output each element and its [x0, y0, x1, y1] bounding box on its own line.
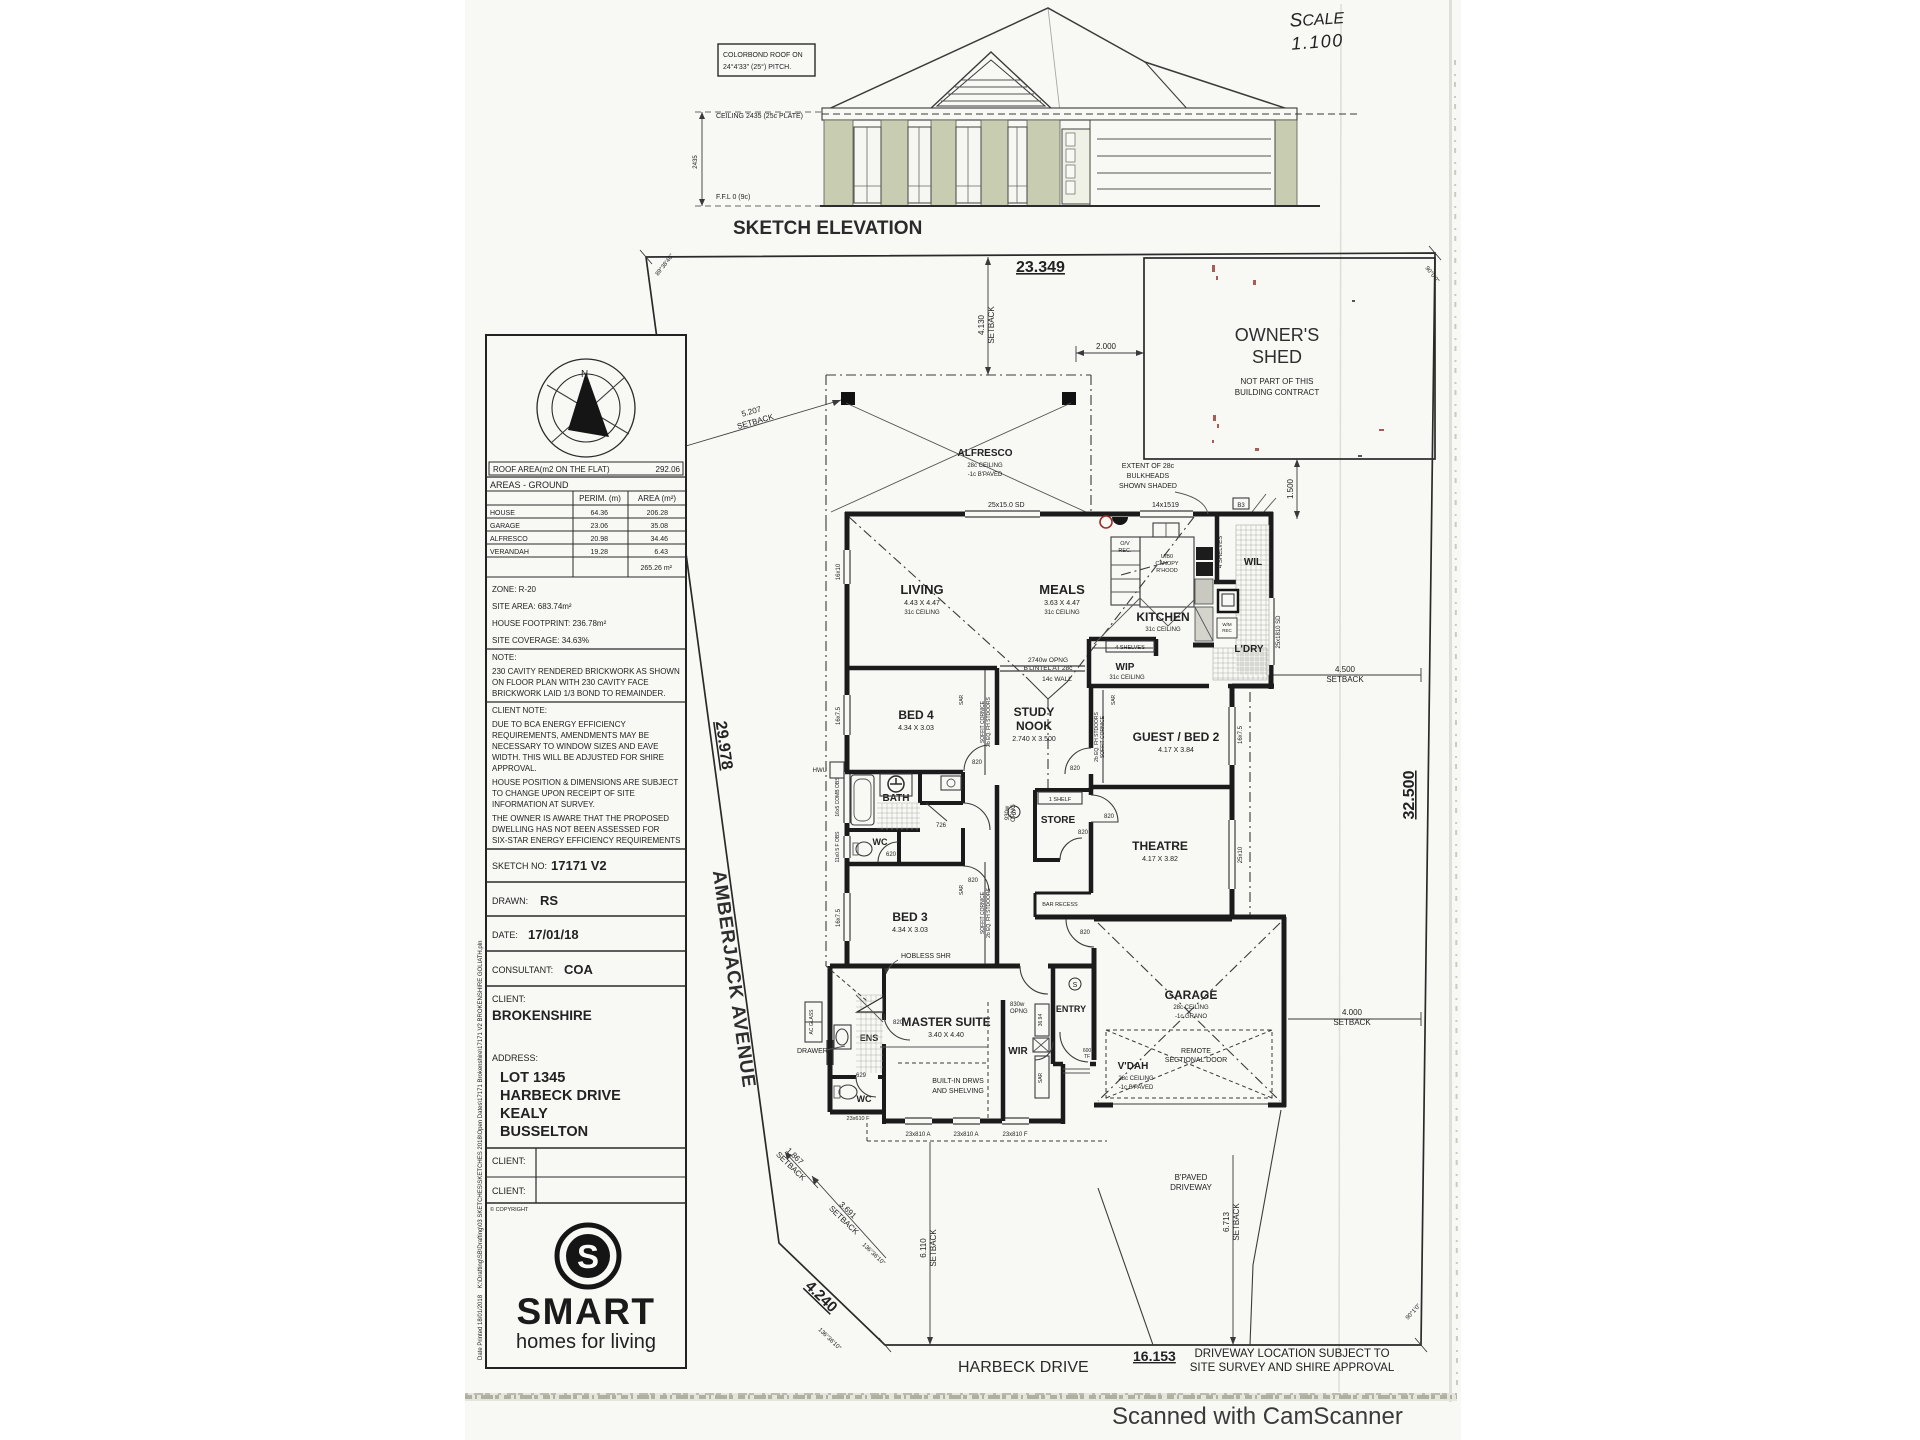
svg-text:2.740 X 3.500: 2.740 X 3.500: [1012, 736, 1056, 743]
svg-text:APPROVAL.: APPROVAL.: [492, 764, 537, 773]
svg-text:GUEST / BED 2: GUEST / BED 2: [1133, 730, 1220, 744]
svg-text:ADDRESS:: ADDRESS:: [492, 1053, 538, 1063]
svg-text:SITE COVERAGE: 34.63%: SITE COVERAGE: 34.63%: [492, 636, 589, 645]
svg-text:STUDY: STUDY: [1014, 705, 1055, 719]
svg-text:COLORBOND ROOF ON: COLORBOND ROOF ON: [723, 52, 803, 59]
svg-text:11x0.5 F OBS: 11x0.5 F OBS: [835, 831, 841, 863]
svg-text:-1c GRANO: -1c GRANO: [1175, 1014, 1207, 1020]
svg-text:OPNG: OPNG: [1010, 1009, 1028, 1015]
svg-text:NOOK: NOOK: [1016, 719, 1052, 733]
svg-text:20.98: 20.98: [590, 536, 608, 543]
svg-text:17/01/18: 17/01/18: [528, 927, 579, 942]
svg-text:23x610 F: 23x610 F: [847, 1116, 871, 1122]
svg-text:BUILDING CONTRACT: BUILDING CONTRACT: [1235, 388, 1320, 397]
svg-text:HOUSE FOOTPRINT: 236.78m²: HOUSE FOOTPRINT: 236.78m²: [492, 619, 607, 628]
svg-text:ENTRY: ENTRY: [1056, 1004, 1086, 1014]
svg-text:820: 820: [1080, 930, 1091, 936]
svg-text:SKETCH NO:: SKETCH NO:: [492, 861, 547, 871]
svg-text:35.08: 35.08: [650, 523, 668, 530]
svg-text:265.26 m²: 265.26 m²: [640, 565, 672, 572]
svg-text:16.153: 16.153: [1133, 1348, 1176, 1364]
svg-text:BULKHEADS: BULKHEADS: [1127, 473, 1170, 480]
svg-text:820: 820: [972, 760, 983, 766]
svg-text:4.34 X 3.03: 4.34 X 3.03: [892, 927, 928, 934]
svg-text:B'PAVED: B'PAVED: [1175, 1173, 1208, 1182]
svg-text:ALFRESCO: ALFRESCO: [958, 448, 1013, 459]
svg-text:NOTE:: NOTE:: [492, 653, 516, 662]
svg-text:4.17 X 3.82: 4.17 X 3.82: [1142, 856, 1178, 863]
svg-text:LIVING: LIVING: [900, 582, 943, 597]
svg-text:INFORMATION AT SURVEY.: INFORMATION AT SURVEY.: [492, 800, 595, 809]
svg-text:VERANDAH: VERANDAH: [490, 549, 529, 556]
svg-text:DRIVEWAY LOCATION SUBJECT TO: DRIVEWAY LOCATION SUBJECT TO: [1194, 1348, 1389, 1360]
svg-text:SETBACK: SETBACK: [1326, 675, 1364, 684]
svg-text:SETBACK: SETBACK: [1232, 1203, 1241, 1241]
svg-text:28c CEILING: 28c CEILING: [1173, 1005, 1209, 1011]
svg-text:SOFFIT CORNICE: SOFFIT CORNICE: [980, 891, 986, 934]
svg-text:17171 V2: 17171 V2: [551, 858, 607, 873]
svg-text:OWNER'S: OWNER'S: [1235, 325, 1319, 345]
svg-text:BAR RECESS: BAR RECESS: [1042, 902, 1078, 908]
svg-text:RS: RS: [540, 893, 558, 908]
svg-text:34.46: 34.46: [650, 536, 668, 543]
svg-text:R'HOOD: R'HOOD: [1156, 568, 1178, 574]
svg-text:4.000: 4.000: [1342, 1008, 1363, 1017]
svg-text:2b EQ. FH STDOORS: 2b EQ. FH STDOORS: [986, 887, 992, 937]
svg-text:16x7.5: 16x7.5: [836, 908, 842, 927]
svg-text:SETBACK: SETBACK: [1333, 1018, 1371, 1027]
svg-text:SAR: SAR: [1111, 694, 1117, 705]
svg-text:HARBECK DRIVE: HARBECK DRIVE: [958, 1359, 1089, 1376]
svg-text:Date Printed 18/01/2018 K:\: Date Printed 18/01/2018 K:\Drafting\SB\D…: [478, 941, 484, 1360]
svg-text:L'DRY: L'DRY: [1234, 644, 1264, 655]
svg-text:SMART: SMART: [516, 1291, 655, 1332]
svg-text:28c CEILING: 28c CEILING: [967, 463, 1003, 469]
svg-text:23.06: 23.06: [590, 523, 608, 530]
svg-text:16x10: 16x10: [836, 563, 842, 580]
svg-text:23.349: 23.349: [1016, 259, 1065, 276]
svg-text:DRAWERS: DRAWERS: [797, 1048, 833, 1055]
svg-text:820: 820: [1070, 766, 1081, 772]
svg-text:6.43: 6.43: [654, 549, 668, 556]
svg-text:16x7.5: 16x7.5: [836, 706, 842, 725]
svg-text:THEATRE: THEATRE: [1132, 839, 1188, 853]
svg-text:ON FLOOR PLAN WITH 230 CAVITY: ON FLOOR PLAN WITH 230 CAVITY FACE: [492, 678, 649, 687]
svg-text:CLIENT NOTE:: CLIENT NOTE:: [492, 706, 547, 715]
svg-text:V'DAH: V'DAH: [1118, 1061, 1149, 1072]
svg-text:25x15.0 SD: 25x15.0 SD: [988, 502, 1025, 509]
svg-text:U/B0: U/B0: [1161, 554, 1173, 560]
svg-text:16x5 COMB OBS: 16x5 COMB OBS: [835, 777, 841, 817]
svg-text:25x1810 SD: 25x1810 SD: [1276, 615, 1282, 649]
svg-text:14x1519: 14x1519: [1152, 502, 1179, 509]
svg-text:SITE SURVEY AND SHIRE APPROVAL: SITE SURVEY AND SHIRE APPROVAL: [1190, 1362, 1395, 1374]
svg-text:19.28: 19.28: [590, 549, 608, 556]
svg-text:EXTENT OF 28c: EXTENT OF 28c: [1122, 463, 1175, 470]
svg-text:CLIENT:: CLIENT:: [492, 1156, 526, 1166]
svg-text:O/V: O/V: [1120, 541, 1130, 547]
svg-text:NECESSARY TO WINDOW SIZES AND: NECESSARY TO WINDOW SIZES AND EAVE: [492, 742, 658, 751]
svg-text:726: 726: [936, 823, 947, 829]
svg-text:292.06: 292.06: [656, 465, 681, 474]
svg-text:ROOF AREA(m2 ON THE FLAT): ROOF AREA(m2 ON THE FLAT): [493, 465, 610, 474]
svg-text:820: 820: [893, 1020, 904, 1026]
svg-text:WIL: WIL: [1244, 557, 1262, 568]
svg-text:ZONE: R-20: ZONE: R-20: [492, 585, 537, 594]
svg-text:25x10: 25x10: [1238, 846, 1244, 863]
svg-text:1 SHELF: 1 SHELF: [1049, 797, 1072, 803]
svg-text:SITE AREA: 683.74m²: SITE AREA: 683.74m²: [492, 602, 572, 611]
svg-text:TO CHANGE UPON RECEIPT OF SITE: TO CHANGE UPON RECEIPT OF SITE: [492, 789, 635, 798]
svg-text:2b EQ. FH STDOORS: 2b EQ. FH STDOORS: [986, 696, 992, 746]
svg-text:© COPYRIGHT: © COPYRIGHT: [490, 1206, 529, 1213]
svg-text:6.713: 6.713: [1222, 1211, 1231, 1232]
svg-text:206.28: 206.28: [647, 510, 669, 517]
svg-text:SETBACK: SETBACK: [929, 1229, 938, 1267]
svg-text:820: 820: [968, 878, 979, 884]
svg-text:GARAGE: GARAGE: [490, 523, 520, 530]
svg-text:-1c B'PAVED: -1c B'PAVED: [1119, 1085, 1154, 1091]
svg-text:REC.: REC.: [1118, 548, 1132, 554]
svg-text:3.40 X 4.40: 3.40 X 4.40: [928, 1032, 964, 1039]
svg-text:23x810 A: 23x810 A: [953, 1132, 978, 1138]
svg-text:820: 820: [1104, 814, 1115, 820]
svg-text:16x7.5: 16x7.5: [1238, 725, 1244, 744]
svg-text:ENS: ENS: [860, 1033, 879, 1043]
svg-text:NOT PART OF THIS: NOT PART OF THIS: [1240, 377, 1313, 386]
svg-text:Scanned with CamScanner: Scanned with CamScanner: [1112, 1403, 1403, 1430]
svg-text:SOFFIT CORNICE: SOFFIT CORNICE: [980, 700, 986, 743]
svg-text:23x810 A: 23x810 A: [905, 1132, 930, 1138]
svg-text:24°4'33" (25°) PITCH.: 24°4'33" (25°) PITCH.: [723, 63, 791, 71]
svg-text:BATH: BATH: [882, 793, 909, 804]
svg-text:DWELLING HAS NOT BEEN ASSESSED: DWELLING HAS NOT BEEN ASSESSED FOR: [492, 825, 660, 834]
svg-text:SOFFIT CORNICE: SOFFIT CORNICE: [1100, 715, 1106, 758]
svg-text:SIX-STAR ENERGY EFFICIENCY REQ: SIX-STAR ENERGY EFFICIENCY REQUIREMENTS: [492, 836, 680, 845]
svg-text:DUE TO BCA ENERGY EFFICIENCY: DUE TO BCA ENERGY EFFICIENCY: [492, 720, 626, 729]
svg-text:BUILT-IN DRWS: BUILT-IN DRWS: [932, 1078, 984, 1085]
svg-text:64.36: 64.36: [590, 510, 608, 517]
svg-text:ALFRESCO: ALFRESCO: [490, 536, 528, 543]
svg-text:BROKENSHIRE: BROKENSHIRE: [492, 1008, 592, 1023]
svg-text:SHED: SHED: [1252, 347, 1302, 367]
svg-text:PERIM. (m): PERIM. (m): [579, 494, 621, 503]
svg-text:SAR: SAR: [959, 884, 965, 895]
svg-text:4.17 X 3.84: 4.17 X 3.84: [1158, 747, 1194, 754]
svg-text:WIP: WIP: [1116, 662, 1135, 673]
svg-text:SAR: SAR: [1038, 1072, 1044, 1083]
svg-text:REC: REC: [1222, 628, 1232, 633]
svg-text:OPNG: OPNG: [1011, 804, 1017, 822]
svg-text:1.100: 1.100: [1291, 30, 1345, 54]
svg-text:AND SHELVING: AND SHELVING: [932, 1088, 984, 1095]
svg-text:4.34 X 3.03: 4.34 X 3.03: [898, 725, 934, 732]
svg-text:REMOTE: REMOTE: [1181, 1048, 1211, 1055]
svg-text:AREAS - GROUND: AREAS - GROUND: [490, 480, 569, 490]
svg-text:LOT 1345: LOT 1345: [500, 1070, 565, 1086]
svg-text:W/M: W/M: [1222, 622, 1231, 627]
svg-text:HWU: HWU: [813, 768, 827, 774]
svg-text:GARAGE: GARAGE: [1165, 988, 1218, 1002]
svg-text:F.F.L 0 (9c): F.F.L 0 (9c): [716, 194, 750, 201]
svg-text:DRIVEWAY: DRIVEWAY: [1170, 1183, 1212, 1192]
svg-text:31c CEILING: 31c CEILING: [1044, 610, 1080, 616]
svg-text:BUSSELTON: BUSSELTON: [500, 1124, 588, 1140]
svg-text:-1c B'PAVED: -1c B'PAVED: [968, 472, 1003, 478]
svg-text:SETBACK: SETBACK: [987, 306, 996, 344]
svg-text:TF: TF: [1084, 1054, 1090, 1060]
svg-text:820: 820: [1078, 830, 1089, 836]
svg-text:2740w OPNG: 2740w OPNG: [1028, 657, 1068, 664]
svg-text:HOUSE POSITION & DIMENSIONS AR: HOUSE POSITION & DIMENSIONS ARE SUBJECT: [492, 778, 678, 787]
svg-text:CLIENT:: CLIENT:: [492, 994, 526, 1004]
svg-text:830w: 830w: [1010, 1002, 1025, 1008]
svg-text:DRAWN:: DRAWN:: [492, 896, 528, 906]
svg-text:1.500: 1.500: [1286, 478, 1295, 499]
svg-text:32.500: 32.500: [1401, 770, 1418, 819]
svg-text:HOUSE: HOUSE: [490, 510, 515, 517]
svg-text:HARBECK DRIVE: HARBECK DRIVE: [500, 1088, 621, 1104]
svg-text:31c CEILING: 31c CEILING: [1145, 627, 1181, 633]
svg-text:CONSULTANT:: CONSULTANT:: [492, 965, 553, 975]
svg-text:WC: WC: [873, 837, 888, 847]
svg-text:CEILING 2435 (25c PLATE): CEILING 2435 (25c PLATE): [716, 113, 803, 120]
svg-text:CLIENT:: CLIENT:: [492, 1186, 526, 1196]
svg-text:620: 620: [886, 852, 897, 858]
svg-text:S: S: [577, 1238, 599, 1275]
svg-text:REQUIREMENTS, AMENDMENTS MAY B: REQUIREMENTS, AMENDMENTS MAY BE: [492, 731, 649, 740]
svg-text:4.43 X 4.47: 4.43 X 4.47: [904, 600, 940, 607]
svg-text:homes for living: homes for living: [516, 1331, 656, 1353]
svg-text:31c CEILING: 31c CEILING: [904, 610, 940, 616]
svg-text:SHOWN SHADED: SHOWN SHADED: [1119, 483, 1177, 490]
svg-text:STORE: STORE: [1041, 815, 1076, 826]
svg-text:THE OWNER IS AWARE THAT THE PR: THE OWNER IS AWARE THAT THE PROPOSED: [492, 814, 669, 823]
svg-text:3.63 X 4.47: 3.63 X 4.47: [1044, 600, 1080, 607]
svg-text:31c CEILING: 31c CEILING: [1109, 675, 1145, 681]
svg-text:2.000: 2.000: [1096, 342, 1117, 351]
svg-text:2435: 2435: [693, 155, 699, 169]
svg-text:4 SHELVES: 4 SHELVES: [1218, 536, 1224, 568]
svg-text:6.110: 6.110: [919, 1238, 928, 1258]
svg-text:BED 3: BED 3: [892, 910, 928, 924]
svg-text:14c WALL: 14c WALL: [1042, 676, 1072, 683]
svg-text:28c CEILING: 28c CEILING: [1118, 1076, 1154, 1082]
svg-text:WIDTH. THIS WILL BE ADJUSTED F: WIDTH. THIS WILL BE ADJUSTED FOR SHIRE: [492, 753, 664, 762]
svg-text:COA: COA: [564, 962, 594, 977]
svg-text:N: N: [581, 369, 588, 380]
svg-text:629: 629: [856, 1073, 867, 1079]
svg-text:HOBLESS SHR: HOBLESS SHR: [901, 953, 951, 960]
svg-text:MEALS: MEALS: [1039, 582, 1085, 597]
svg-text:KEALY: KEALY: [500, 1106, 548, 1122]
svg-text:BRICKWORK LAID 1/3 BOND TO REM: BRICKWORK LAID 1/3 BOND TO REMAINDER.: [492, 689, 666, 698]
svg-text:36.94: 36.94: [1038, 1014, 1044, 1027]
svg-text:MASTER SUITE: MASTER SUITE: [901, 1015, 990, 1029]
svg-text:230 CAVITY RENDERED BRICKWORK: 230 CAVITY RENDERED BRICKWORK AS SHOWN: [492, 667, 680, 676]
svg-text:BED 4: BED 4: [898, 708, 934, 722]
svg-text:23x810 F: 23x810 F: [1002, 1132, 1027, 1138]
svg-text:DATE:: DATE:: [492, 930, 518, 940]
svg-text:WIR: WIR: [1008, 1046, 1028, 1057]
svg-text:AREA (m²): AREA (m²): [638, 494, 677, 503]
svg-text:AC GLASS: AC GLASS: [809, 1009, 815, 1035]
svg-text:4 SHELVES: 4 SHELVES: [1115, 645, 1145, 651]
svg-text:KITCHEN: KITCHEN: [1136, 610, 1189, 624]
svg-text:4.130: 4.130: [977, 314, 986, 335]
svg-text:S: S: [1073, 982, 1078, 989]
svg-text:SKETCH ELEVATION: SKETCH ELEVATION: [733, 218, 922, 239]
svg-text:SAR: SAR: [959, 694, 965, 705]
svg-text:B3: B3: [1237, 503, 1245, 509]
svg-text:4.500: 4.500: [1335, 665, 1356, 674]
